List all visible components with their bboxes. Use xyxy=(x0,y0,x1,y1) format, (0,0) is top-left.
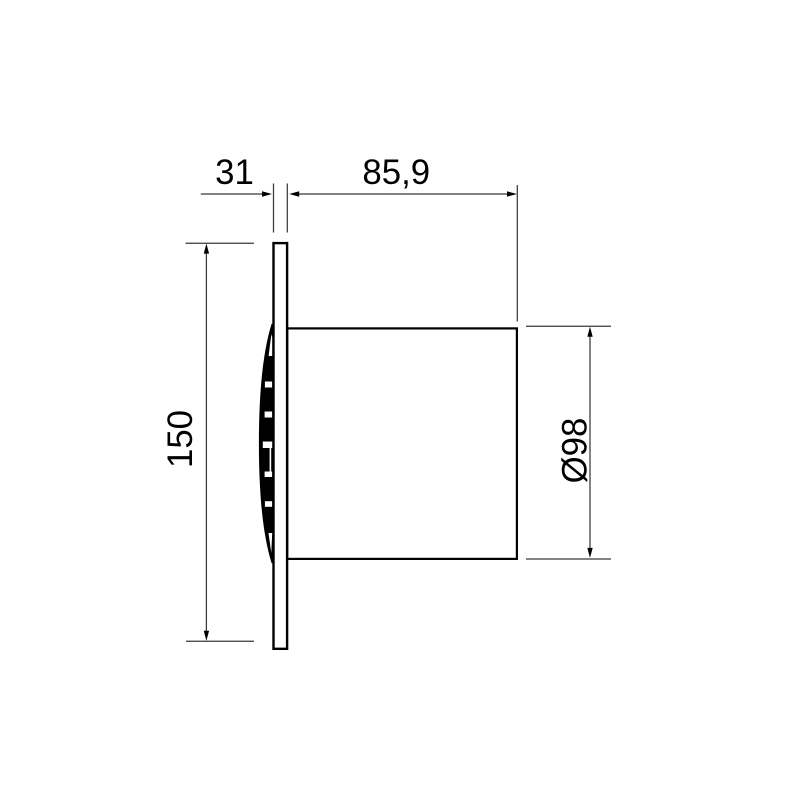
svg-text:Ø98: Ø98 xyxy=(556,418,595,484)
svg-text:31: 31 xyxy=(215,153,254,192)
svg-text:85,9: 85,9 xyxy=(362,153,430,192)
svg-text:150: 150 xyxy=(161,410,200,468)
